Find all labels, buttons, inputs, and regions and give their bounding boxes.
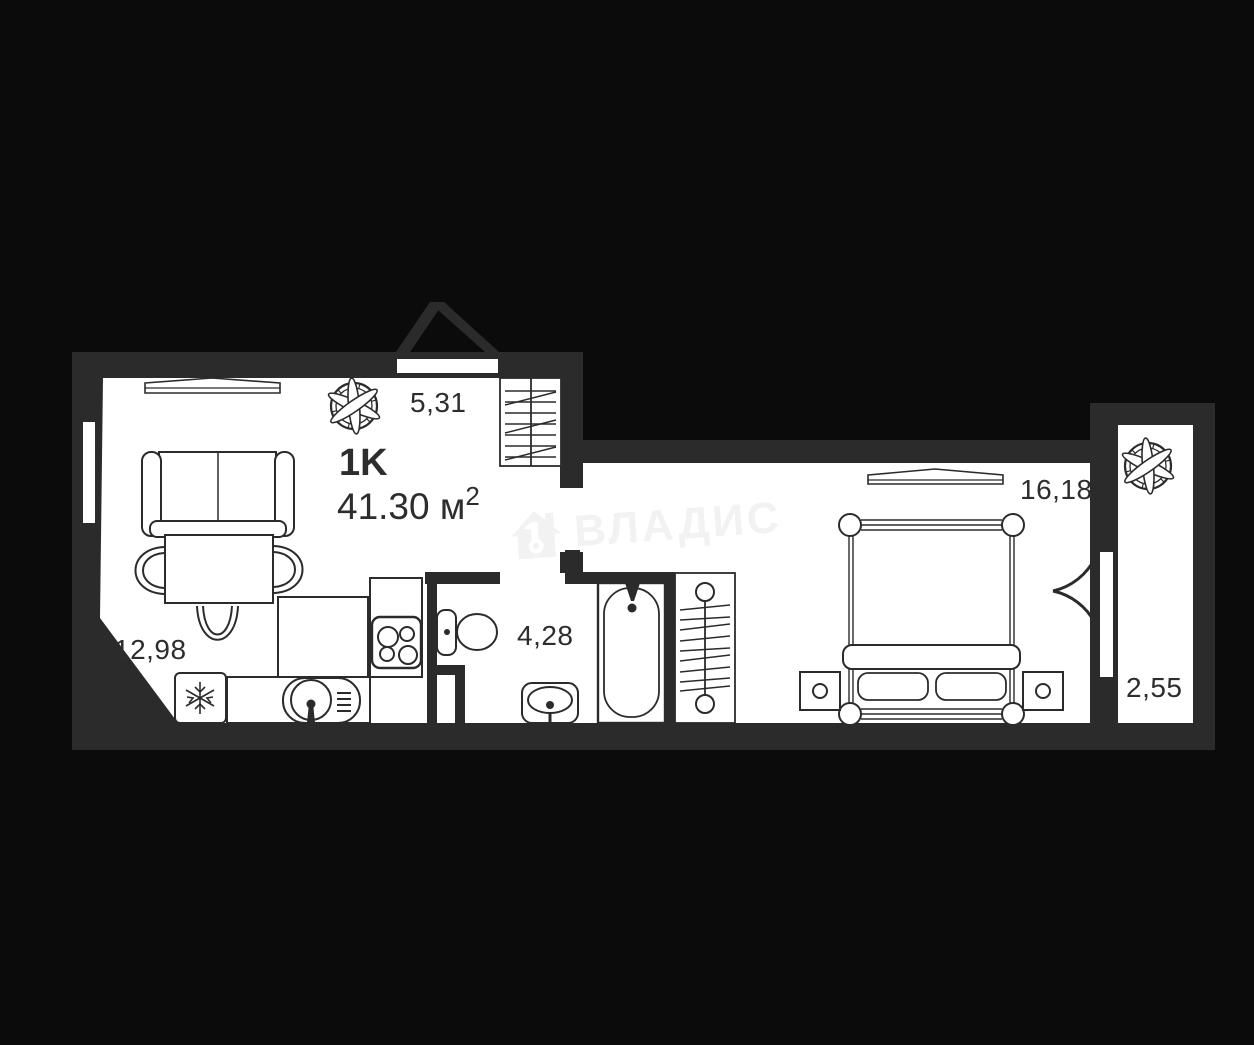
floorplan-svg: ВЛАДИС xyxy=(0,0,1254,1045)
room-label-living-kitchen: 12,98 xyxy=(114,634,187,665)
entrance-threshold xyxy=(397,359,498,373)
kitchen-counter-block xyxy=(278,597,368,677)
nightstand-right xyxy=(1023,672,1063,710)
room-label-bathroom: 4,28 xyxy=(517,620,574,651)
room-label-hallway: 5,31 xyxy=(410,387,467,418)
area-superscript: 2 xyxy=(465,481,479,511)
apartment-type-label: 1K xyxy=(339,442,388,484)
area-unit: м xyxy=(430,486,466,527)
sofa xyxy=(142,452,294,537)
room-label-bedroom: 16,18 xyxy=(1020,474,1093,505)
area-value: 41.30 xyxy=(337,486,430,527)
fridge xyxy=(175,673,226,723)
wall-toilet-niche-v xyxy=(455,672,465,723)
kitchen-sink xyxy=(283,678,360,723)
bedroom-wardrobe-rack xyxy=(675,573,735,723)
wall-hallway-right xyxy=(560,352,583,488)
room-label-balcony: 2,55 xyxy=(1126,672,1183,703)
bathroom-sink xyxy=(522,683,578,723)
nightstand-left xyxy=(800,672,840,710)
dining-table xyxy=(165,535,273,603)
bathtub xyxy=(598,583,665,723)
apartment-area-label: 41.30 м2 xyxy=(337,481,480,527)
hallway-wardrobe xyxy=(500,378,561,466)
window-left-wall xyxy=(83,422,95,523)
balcony-door-leaf xyxy=(1100,552,1113,677)
floorplan-canvas: ВЛАДИС xyxy=(0,0,1254,1045)
stove xyxy=(372,617,421,668)
wall-kitchen-bathroom xyxy=(427,572,437,723)
wall-bathroom-top-left xyxy=(425,572,500,584)
hallway-furniture xyxy=(500,378,561,466)
